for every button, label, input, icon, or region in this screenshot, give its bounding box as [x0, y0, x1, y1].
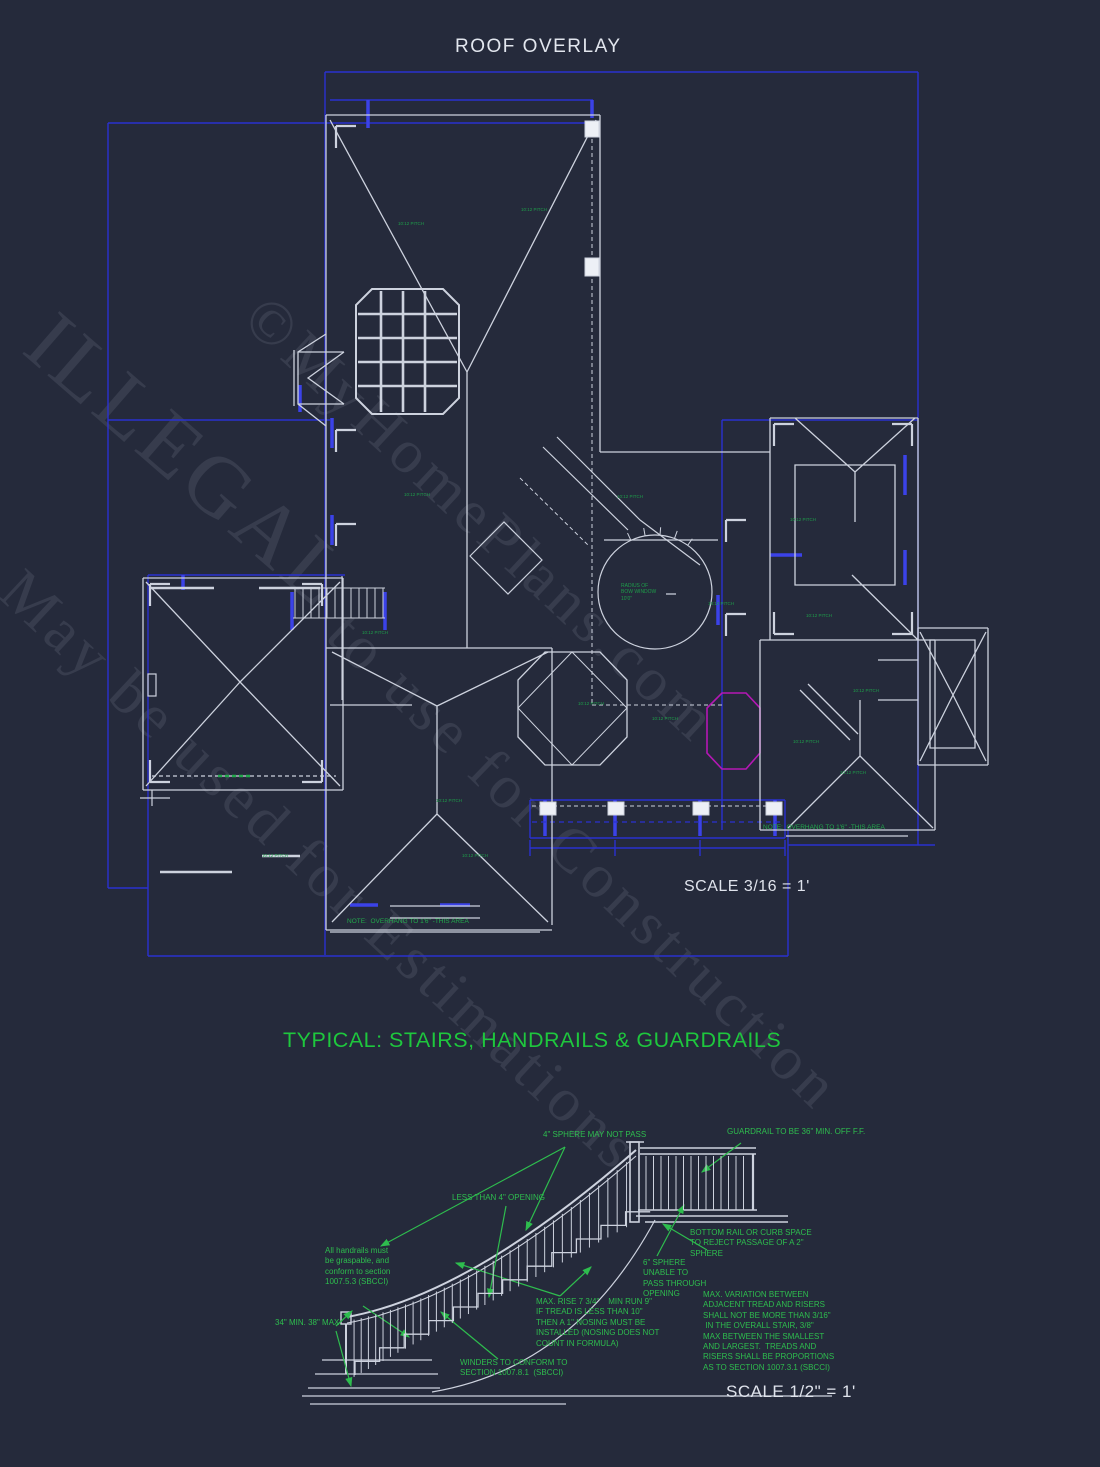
roof-pitch-label: 10:12 PITCH: [793, 739, 819, 744]
roof-overlay-title: ROOF OVERLAY: [455, 36, 622, 58]
roof-note-overhang-right: NOTE: OVERHANG TO 1'6" -THIS AREA: [763, 824, 885, 831]
roof-pitch-label: 10:12 PITCH: [840, 770, 866, 775]
note-handrails-graspable: All handrails must be graspable, and con…: [325, 1246, 390, 1288]
stairs-scale-label: SCALE 1/2" = 1': [726, 1382, 856, 1402]
bow-window-radius-label: RADIUS OF BOW WINDOW 10'0": [621, 583, 667, 602]
roof-pitch-label: 10:12 PITCH: [806, 613, 832, 618]
stairs-section-title: TYPICAL: STAIRS, HANDRAILS & GUARDRAILS: [283, 1028, 781, 1053]
roof-note-overhang-bottom: NOTE: OVERHANG TO 1'6" -THIS AREA: [347, 918, 469, 925]
note-bottom-rail: BOTTOM RAIL OR CURB SPACE TO REJECT PASS…: [690, 1228, 812, 1259]
roof-pitch-label: 10:12 PITCH: [404, 492, 430, 497]
roof-pitch-label: 10:12 PITCH: [617, 494, 643, 499]
roof-scale-label: SCALE 3/16 = 1': [684, 878, 810, 896]
roof-plan-linework: [140, 115, 988, 932]
roof-pitch-label: 10:12 PITCH: [462, 853, 488, 858]
roof-pitch-label: 10:12 PITCH: [398, 221, 424, 226]
generated-linework: [150, 126, 912, 1377]
roof-pitch-label: 10:12 PITCH: [362, 630, 388, 635]
roof-pitch-label: 10:12 PITCH: [262, 853, 288, 858]
blueprint-page: { "roof": { "title": "ROOF OVERLAY", "sc…: [0, 0, 1100, 1467]
roof-pitch-label: 10:12 PITCH: [436, 798, 462, 803]
note-less-than-4in-opening: LESS THAN 4" OPENING: [452, 1193, 545, 1203]
roof-pitch-label: 10:12 PITCH: [578, 701, 604, 706]
note-guardrail-36in: GUARDRAIL TO BE 36" MIN. OFF F.F.: [727, 1127, 865, 1137]
roof-pitch-label: 10:12 PITCH: [652, 716, 678, 721]
roof-pitch-label: 10:12 PITCH: [853, 688, 879, 693]
cad-drawing-canvas: [0, 0, 1100, 1467]
note-rail-height: 34" MIN. 38" MAX.: [275, 1318, 342, 1328]
roof-pitch-label: 10:12 PITCH: [790, 517, 816, 522]
roof-pitch-label: 10:12 PITCH: [521, 207, 547, 212]
note-rise-run: MAX. RISE 7 3/4" MIN RUN 9" IF TREAD IS …: [536, 1297, 659, 1349]
note-winders: WINDERS TO CONFORM TO SECTION 1007.8.1 (…: [460, 1358, 567, 1379]
note-6in-sphere: 6" SPHERE UNABLE TO PASS THROUGH OPENING: [643, 1258, 706, 1300]
roof-pitch-label: 10:12 PITCH: [708, 601, 734, 606]
note-tread-variation: MAX. VARIATION BETWEEN ADJACENT TREAD AN…: [703, 1290, 834, 1373]
note-4in-sphere: 4" SPHERE MAY NOT PASS: [543, 1130, 646, 1140]
